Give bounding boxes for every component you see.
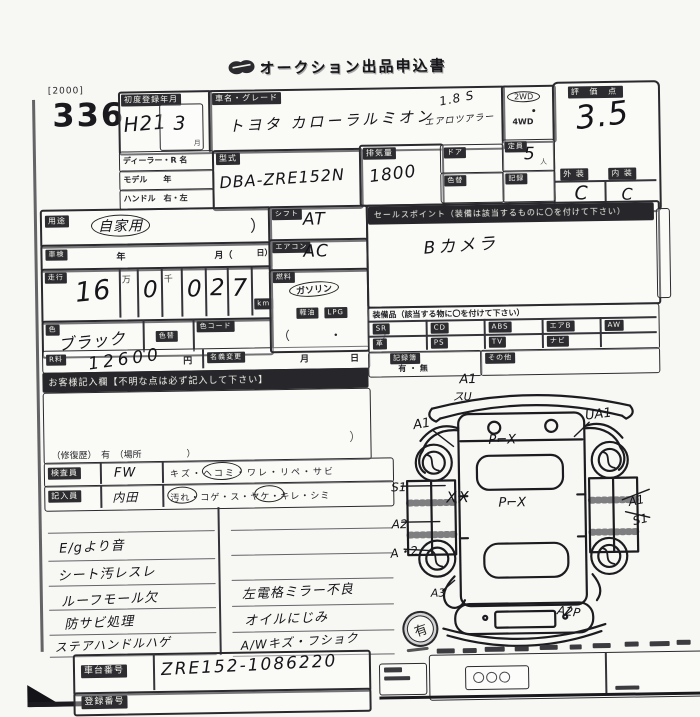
- repair-note: （修復歴） 有 （場所 ）: [52, 446, 196, 461]
- note-line-r1: [231, 527, 393, 531]
- auction-logo-icon: [227, 58, 255, 75]
- aircon-value: AC: [303, 241, 329, 261]
- car-name-label: 車名・グレード: [212, 92, 281, 105]
- equip-tv: TV: [489, 337, 506, 348]
- damage-mark-left-s1: S1: [391, 480, 406, 494]
- drive-4wd: 4WD: [512, 117, 533, 126]
- damage-mark-left-a1: A1: [412, 416, 431, 433]
- damage-mark-corner-a3: A3: [431, 587, 446, 600]
- score-value: 3.5: [573, 93, 631, 137]
- mileage-v4: 2: [210, 275, 226, 301]
- record-options: 有 ・ 無: [398, 363, 428, 374]
- shift-label: シフト: [272, 209, 302, 220]
- right-margin-strip: [656, 208, 671, 298]
- handle-label: ハンドル 右・左: [124, 193, 188, 205]
- inspector-value: FW: [114, 465, 137, 480]
- damage-mark-top-su: スU: [453, 388, 472, 404]
- capacity-unit: 人: [540, 157, 547, 167]
- strip-dot-2: [486, 672, 497, 683]
- mileage-v1: 16: [74, 274, 113, 309]
- damage-mark-left-a2: A2: [392, 517, 408, 531]
- note-right-1: 左電格ミラー不良: [241, 578, 354, 603]
- damage-mark-left-a2b: A・2: [389, 542, 419, 562]
- record-small-label: 記録: [505, 173, 527, 184]
- damage-mark-top-a1: A1: [459, 372, 476, 387]
- strip-label-6: [570, 644, 582, 649]
- office-mini-2: [384, 676, 410, 680]
- writer-value: 内田: [112, 488, 138, 505]
- fuel-diesel: 軽油: [296, 307, 318, 318]
- equip-navi: ナビ: [547, 336, 569, 347]
- color-change-label: 色替: [444, 175, 466, 186]
- registration-number-label: 登録番号: [81, 696, 127, 710]
- month-unit: 月: [194, 138, 201, 148]
- stray-paren: ）: [349, 428, 361, 445]
- damage-mark-roof-px: P⌐X: [498, 495, 526, 510]
- page-title: オークション出品申込書: [259, 54, 446, 78]
- strip-label-7: [593, 643, 611, 648]
- note-left-1: E/gより音: [59, 534, 125, 556]
- lot-number: 336: [52, 96, 125, 135]
- damage-mark-right-a1: A1: [627, 492, 645, 509]
- strip-label-8: [625, 642, 639, 647]
- chassis-label: 車台番号: [81, 665, 127, 679]
- displacement-label: 排気量: [363, 147, 396, 160]
- car-diagram: [395, 375, 669, 654]
- strip-label-1: [437, 648, 455, 653]
- capacity-value: 5: [524, 144, 536, 164]
- notes-divider: [217, 507, 221, 655]
- inspector-options: キズ・ヘコミ・ワレ・リペ・サビ: [170, 464, 335, 480]
- mileage-v2: 0: [143, 277, 159, 303]
- usage-label: 用途: [45, 215, 69, 227]
- mileage-label: 走行: [45, 272, 67, 283]
- strip-label-3: [485, 647, 505, 652]
- fee-yen: 円: [183, 353, 192, 366]
- equip-ps: PS: [431, 337, 448, 348]
- door-label: ドア: [444, 147, 466, 158]
- strip-label-4: [515, 646, 529, 651]
- inspector-div2: [162, 462, 164, 483]
- other-label: その他: [485, 352, 515, 363]
- usage-paren: ）: [250, 212, 266, 236]
- equip-abs: ABS: [489, 321, 512, 332]
- inspector-div1: [100, 463, 102, 484]
- mileage-man: 万: [122, 272, 131, 285]
- stamp-text: 有: [411, 618, 429, 640]
- shaken-year: 年: [116, 250, 125, 263]
- writer-div1: [100, 486, 102, 508]
- strip-label-9: [650, 641, 670, 646]
- note-line-r2: [231, 552, 393, 556]
- strip-label-5: [540, 645, 558, 650]
- color-change-chip: 色替: [156, 331, 178, 342]
- fuel-lpg: LPG: [324, 307, 347, 318]
- strip-dot-1: [473, 672, 484, 683]
- equip-leather: 革: [373, 338, 387, 349]
- fee-label: R料: [46, 354, 66, 365]
- damage-mark-right-ua1: UA1: [584, 406, 612, 424]
- equip-cd: CD: [431, 322, 449, 333]
- shaken-label: 車検: [45, 249, 67, 260]
- interior-label: 内 装: [608, 167, 636, 179]
- inspector-label: 検査員: [48, 467, 81, 480]
- writer-div2: [162, 485, 164, 507]
- note-right-2: オイルにじみ: [244, 606, 329, 629]
- exterior-label: 外 装: [560, 168, 588, 180]
- equip-airbag: エアB: [547, 320, 575, 331]
- damage-mark-door-xx: XX: [446, 488, 471, 506]
- equip-sr: SR: [373, 323, 390, 334]
- note-left-4: 防サビ処理: [64, 610, 135, 633]
- note-line-l3: [49, 583, 216, 587]
- transfer-label: 名義変更: [207, 352, 245, 364]
- color-code-label: 色コード: [197, 321, 235, 333]
- strip-bottom-mark: [615, 685, 639, 689]
- dealer-label: ディーラー・R 名: [123, 155, 188, 167]
- registration-month-value: 3: [173, 113, 186, 135]
- fee-div: [202, 349, 204, 368]
- sales-point-value: Bカメラ: [423, 229, 499, 259]
- auction-sheet: オークション出品申込書 [2000] 336 初度登録年月 H21 3 月 車名…: [0, 0, 700, 705]
- shaken-month: 月（: [214, 248, 232, 261]
- pen-dot: [532, 109, 535, 112]
- strip-label-10: [677, 640, 691, 645]
- transfer-day: 日: [350, 351, 359, 364]
- mileage-v3: 0: [187, 276, 203, 302]
- usage-value-circled: 自家用: [91, 214, 150, 237]
- model-label: モデル 年: [123, 174, 171, 186]
- damage-mark-hatch-px: P⌐X: [488, 432, 516, 447]
- office-mini-1: [384, 667, 402, 672]
- equip-aw: AW: [605, 320, 624, 331]
- model-code-label: 型式: [216, 153, 240, 165]
- transfer-month: 月: [300, 352, 309, 365]
- mileage-sen: 千: [164, 272, 173, 285]
- note-line-l1: [48, 530, 215, 534]
- strip-dot-3: [499, 672, 510, 683]
- shift-value: AT: [303, 209, 326, 229]
- mileage-v5: 7: [232, 274, 249, 302]
- note-left-3: ルーフモール欠: [60, 586, 158, 610]
- damage-mark-bottom-a2p: A2P: [556, 603, 581, 620]
- fuel-label: 燃料: [273, 272, 295, 283]
- writer-label: 記入員: [48, 490, 81, 503]
- note-left-2: シート汚レスレ: [57, 560, 156, 584]
- doc-code: [2000]: [48, 86, 84, 97]
- strip-label-2: [463, 648, 477, 653]
